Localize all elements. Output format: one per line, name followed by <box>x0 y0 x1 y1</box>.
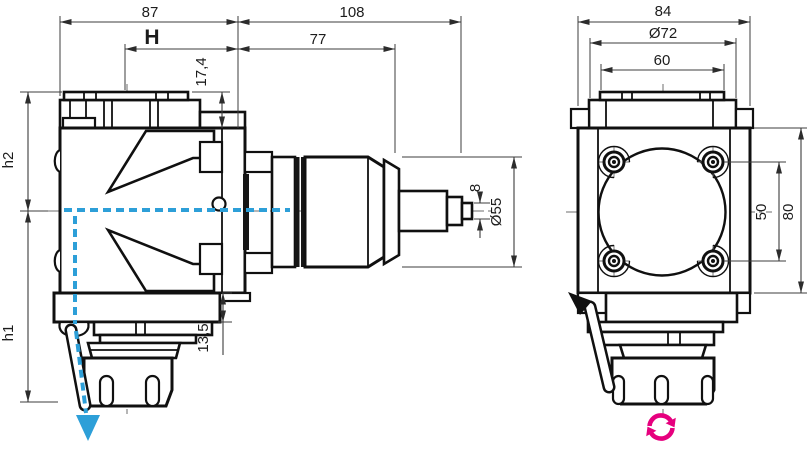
front-top-plate <box>600 92 724 100</box>
front-cap-ear-right <box>736 109 753 128</box>
front-collet-step-1 <box>588 322 723 332</box>
side-lug-upper <box>55 150 60 172</box>
side-view <box>45 84 492 441</box>
collet-nut-slot-left <box>100 376 113 406</box>
front-nut-slot-center <box>655 376 668 404</box>
collet-nut-slot-right <box>146 376 159 406</box>
dim-length-108: 108 <box>339 4 364 21</box>
front-body <box>578 128 750 293</box>
top-plate <box>64 92 188 100</box>
tool-rotation-icon <box>646 415 676 438</box>
dim-length-77: 77 <box>310 31 327 48</box>
bottom-flange-step <box>220 293 250 301</box>
bottom-flange <box>54 293 220 322</box>
dim-17-4: 17,4 <box>193 57 210 86</box>
front-collet-ring <box>620 345 706 358</box>
tool-holder-drawing: 87 108 H 77 17,4 h2 h1 13,5 8 Ø55 84 Ø72… <box>0 0 810 451</box>
dim-h1: h1 <box>0 325 17 342</box>
dim-h2: h2 <box>0 152 17 169</box>
front-top-cap <box>589 100 736 128</box>
bearing-block-upper-inner <box>200 142 222 172</box>
front-spindle-housing <box>606 293 737 322</box>
side-lug-lower <box>55 250 60 272</box>
front-collet-step-2 <box>600 332 714 345</box>
shaft-step-2 <box>447 197 462 225</box>
dim-height-80: 80 <box>780 204 797 221</box>
technical-drawing-canvas: 87 108 H 77 17,4 h2 h1 13,5 8 Ø55 84 Ø72… <box>0 0 810 451</box>
shaft-step-1 <box>399 191 447 231</box>
shaft-tip <box>462 203 472 219</box>
dim-shaft-8: 8 <box>467 184 484 192</box>
bearing-block-lower-inner <box>200 244 222 274</box>
dim-13-5: 13,5 <box>195 323 212 352</box>
dim-width-84: 84 <box>655 3 672 20</box>
dim-gauge-H: H <box>144 26 159 49</box>
dim-width-60: 60 <box>654 52 671 69</box>
coupling-end-cap <box>384 160 399 264</box>
dim-bolt-spacing-50: 50 <box>753 204 770 221</box>
front-cap-ear-left <box>571 109 589 128</box>
dim-diameter-55: Ø55 <box>488 198 505 226</box>
bearing-block-lower-outer <box>245 253 272 273</box>
coolant-flow-arrow-icon <box>76 415 100 441</box>
dim-diameter-72: Ø72 <box>649 25 677 42</box>
coupling-barrel <box>305 157 384 267</box>
dim-width-87: 87 <box>142 4 159 21</box>
bearing-block-upper-outer <box>245 152 272 172</box>
front-nut-slot-right <box>702 376 713 404</box>
